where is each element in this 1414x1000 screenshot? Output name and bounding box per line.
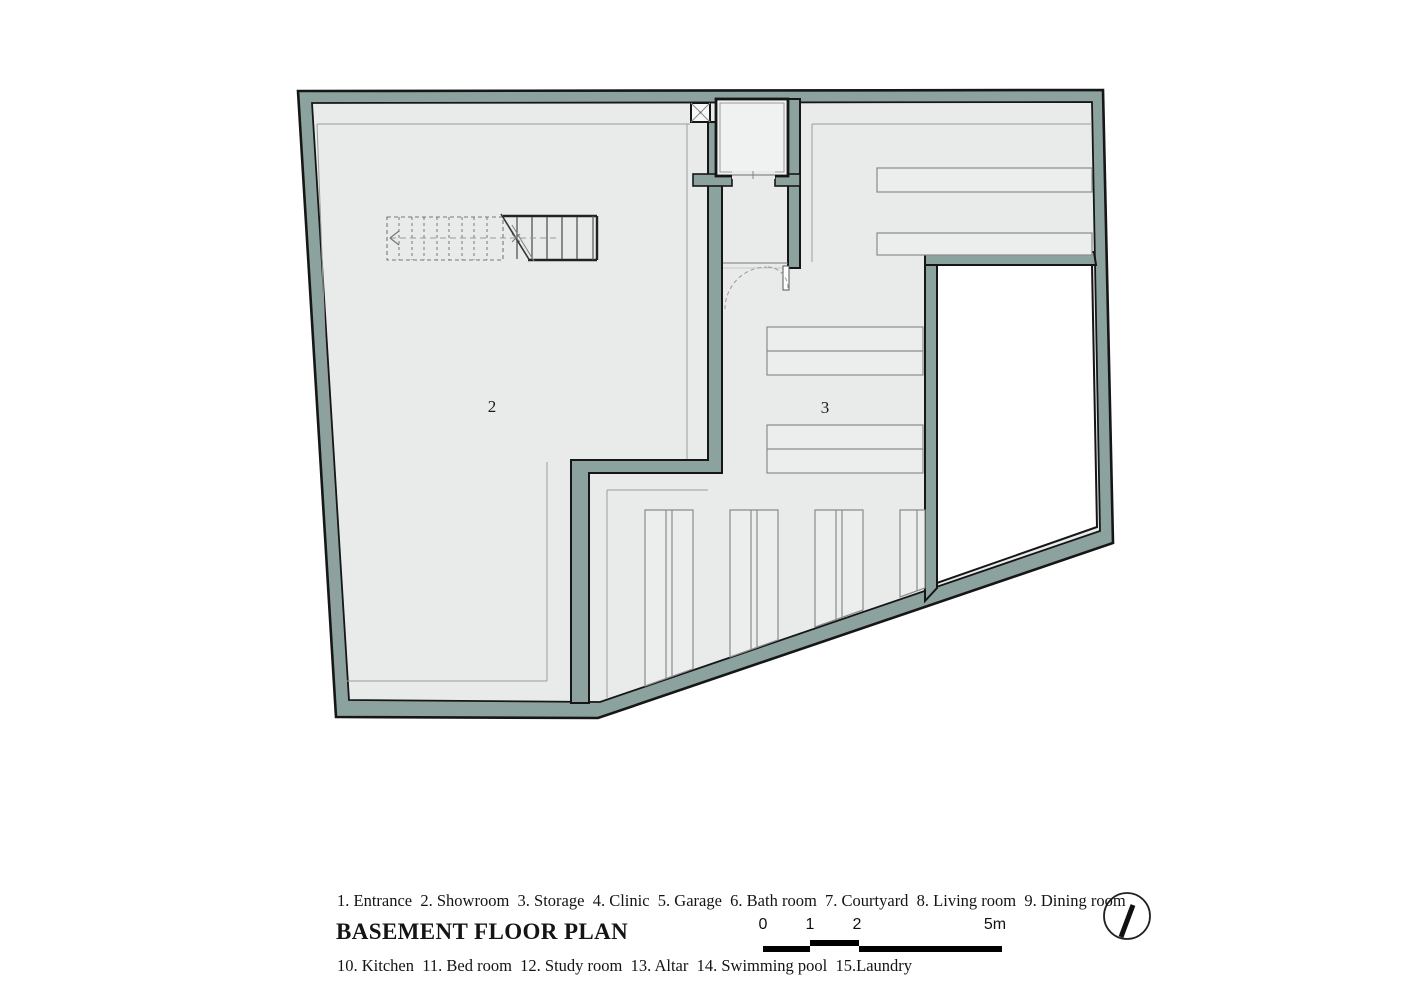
page-title: BASEMENT FLOOR PLAN (336, 919, 628, 945)
elevator-symbol (716, 99, 788, 179)
duct-shaft-symbol (691, 103, 710, 122)
legend-line-1: 1. Entrance 2. Showroom 3. Storage 4. Cl… (337, 890, 1126, 912)
courtyard-left-wall (925, 265, 937, 601)
legend-line-2: 10. Kitchen 11. Bed room 12. Study room … (337, 955, 1126, 977)
room-label-storage: 3 (821, 398, 830, 417)
courtyard-void (937, 265, 1097, 583)
page: 2 3 0 1 2 5m 1. Entrance 2. Showroom 3. … (0, 0, 1414, 1000)
room-label-showroom: 2 (488, 397, 497, 416)
